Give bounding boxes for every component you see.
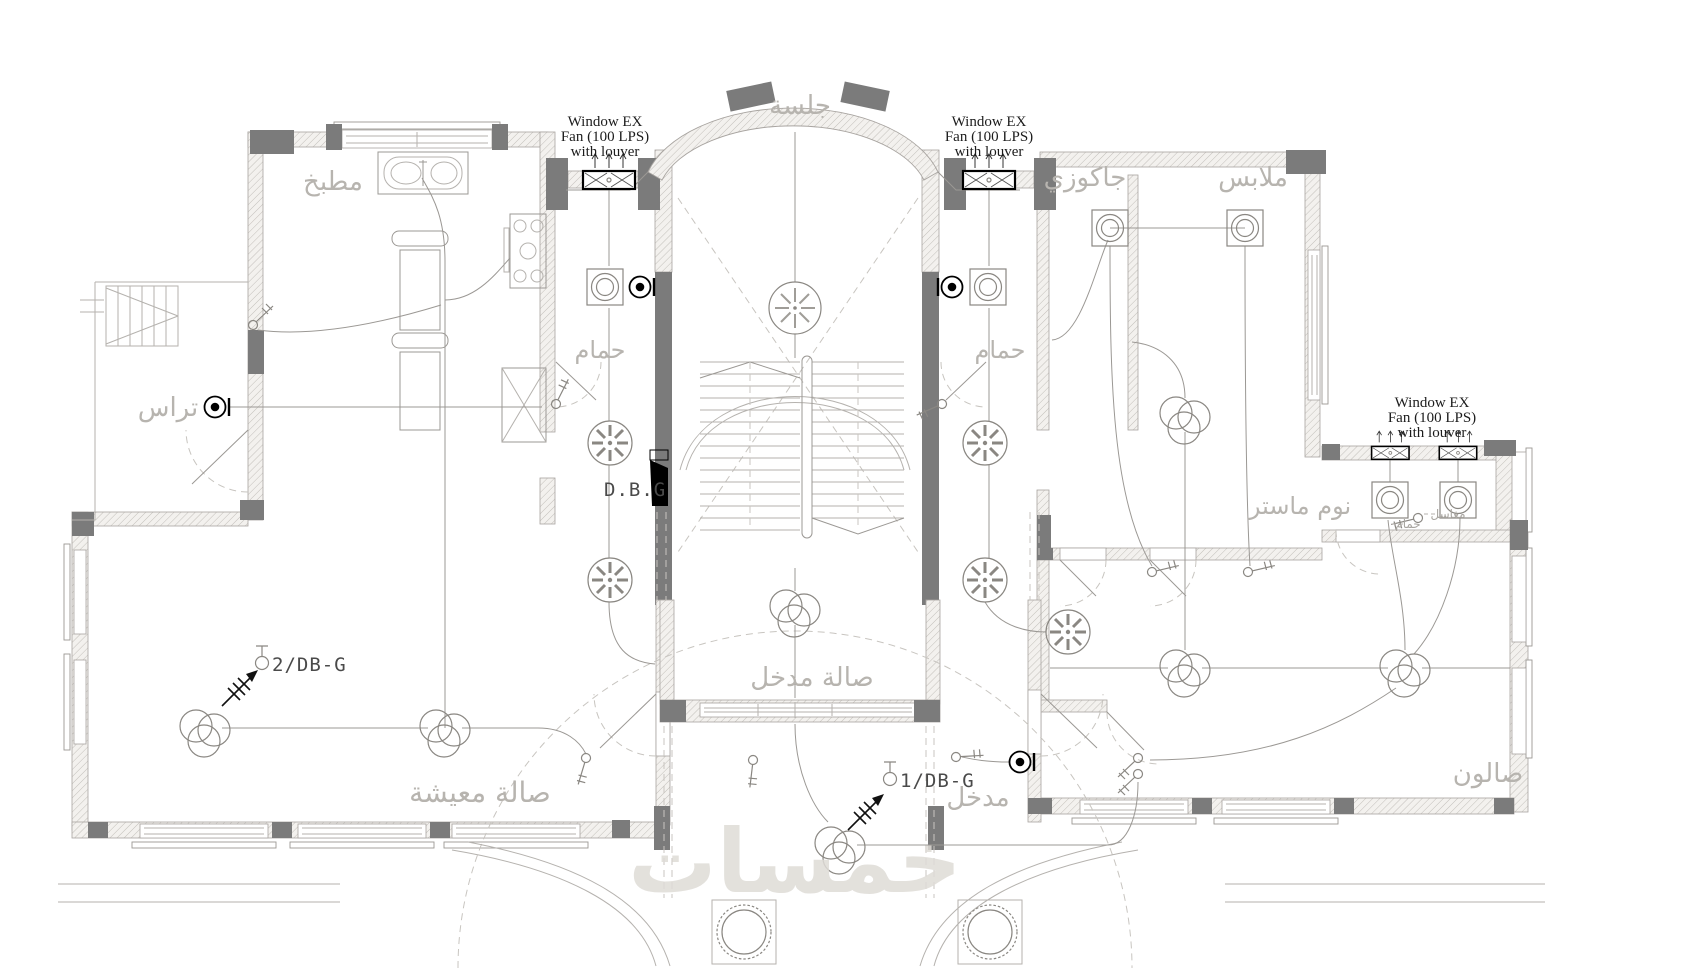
exhaust-fan-icon — [588, 421, 632, 465]
watermark: خمسات — [628, 810, 961, 913]
wall-light-icon — [205, 397, 230, 418]
room-label-terrace: تراس — [138, 393, 199, 423]
window-sill — [1526, 660, 1532, 758]
window — [1080, 800, 1188, 814]
floor-plan-canvas: Window EX Fan (100 LPS) with louver Wind… — [0, 0, 1700, 970]
window — [1308, 250, 1320, 400]
light-cluster-icon — [420, 710, 470, 757]
window-sill — [1072, 818, 1196, 824]
fan-label-2-line3: with louver — [955, 144, 1024, 160]
exhaust-fan-icon — [963, 421, 1007, 465]
door-leaf — [1150, 560, 1186, 596]
column — [1322, 444, 1340, 460]
stair-rail — [802, 356, 812, 538]
door-opening — [1028, 690, 1041, 754]
island-cap — [392, 333, 448, 348]
bay-cross-brace — [678, 198, 918, 552]
sink-basin — [431, 162, 457, 184]
circuit-2-label: 2/DB-G — [272, 654, 347, 676]
wall-segment — [540, 478, 555, 524]
homerun-arrow-c2 — [222, 670, 258, 706]
room-label-sitting: جلسة — [769, 91, 831, 121]
column — [272, 822, 292, 838]
ceiling-light-icon — [1372, 482, 1408, 518]
switch-icon — [735, 754, 770, 789]
wire — [222, 728, 586, 754]
column — [1510, 520, 1528, 550]
fan-label-1-line2: Fan (100 LPS) — [561, 129, 649, 145]
wire — [1150, 688, 1396, 760]
column — [914, 700, 940, 722]
room-label-master-bath: حمام — [1395, 517, 1420, 531]
light-cluster-icon — [180, 710, 230, 757]
room-label-entry-hall: صالة مدخل — [750, 663, 873, 693]
window-sill — [132, 842, 276, 848]
window — [298, 824, 426, 838]
wire — [258, 178, 510, 728]
window-sill — [444, 842, 588, 848]
light-cluster-icon — [1380, 650, 1430, 697]
switch-icon — [1118, 754, 1143, 780]
room-label-kitchen: مطبخ — [303, 167, 363, 197]
round-column-inner — [722, 910, 766, 954]
wall-light-icon — [938, 277, 963, 298]
window-ex-fan-icon — [963, 171, 1015, 189]
door-opening — [1336, 530, 1380, 542]
fan-label-1-line1: Window EX — [568, 114, 643, 130]
burner — [514, 270, 526, 282]
wall-segment — [72, 512, 248, 526]
window — [1512, 668, 1526, 754]
door-leaf — [556, 362, 596, 400]
sink-basin — [391, 162, 421, 184]
round-column — [963, 905, 1017, 959]
island-body — [400, 250, 440, 330]
fan-label-3-line2: Fan (100 LPS) — [1388, 410, 1476, 426]
column — [88, 822, 108, 838]
ceiling-light-icon — [970, 269, 1006, 305]
wall-segment — [1128, 175, 1138, 430]
wall-segment — [248, 132, 263, 520]
fan-label-3-line1: Window EX — [1395, 395, 1470, 411]
window-sill — [334, 122, 500, 129]
column — [1484, 440, 1516, 456]
door-opening — [1150, 548, 1196, 560]
wall-segment — [1037, 700, 1107, 712]
column — [492, 124, 508, 150]
column — [1334, 798, 1354, 814]
column — [240, 500, 264, 520]
column — [1494, 798, 1514, 814]
door-leaf — [600, 694, 656, 748]
fan-label-3-line3: with louver — [1398, 425, 1467, 441]
room-label-jacuzzi: جاكوزي — [1044, 163, 1127, 193]
window-ex-fan-icon — [1439, 446, 1476, 459]
db-board-label: D.B.G — [604, 479, 666, 501]
round-column — [717, 905, 771, 959]
walls-layer — [72, 132, 1528, 838]
door-leaf — [946, 362, 986, 400]
window-sill — [1214, 818, 1338, 824]
column — [430, 822, 450, 838]
column — [1028, 798, 1052, 814]
room-label-bath-left: حمام — [575, 336, 626, 364]
circuit-symbol — [884, 762, 897, 786]
shower-cross — [502, 368, 546, 442]
ceiling-light-icon — [587, 269, 623, 305]
ceiling-fan-icon — [769, 282, 821, 334]
floor-plan-drawing: Window EX Fan (100 LPS) with louver Wind… — [0, 0, 1700, 970]
entrance-door-glazing — [700, 703, 916, 717]
window-sill — [1526, 448, 1532, 532]
wall-heavy — [922, 272, 939, 605]
bay-arch — [680, 397, 910, 471]
door-leaf — [192, 430, 248, 484]
column — [326, 124, 342, 150]
window-ex-fan-icon — [583, 171, 635, 189]
door-leaf — [1060, 560, 1096, 596]
window-sill — [1322, 246, 1328, 404]
window — [74, 660, 86, 744]
archway-dashes — [657, 512, 1039, 600]
stove-panel — [504, 228, 509, 272]
window-sill — [290, 842, 434, 848]
exhaust-fan-icon — [963, 558, 1007, 602]
window — [1222, 800, 1330, 814]
switch-icon — [566, 752, 600, 786]
column — [546, 158, 568, 210]
fan-label-2-line1: Window EX — [952, 114, 1027, 130]
window-sill — [64, 544, 70, 640]
fan-label-1-line3: with louver — [571, 144, 640, 160]
room-label-closet: ملابس — [1218, 163, 1288, 193]
window — [452, 824, 580, 838]
door-leaf — [1107, 712, 1144, 750]
wire — [609, 190, 655, 664]
door-opening — [1060, 548, 1106, 560]
wall-segment — [660, 600, 674, 704]
sink-tap — [419, 160, 427, 186]
light-cluster-icon — [1160, 650, 1210, 697]
wall-segment — [926, 600, 940, 704]
burner — [514, 220, 526, 232]
room-label-entry: مدخل — [946, 783, 1009, 813]
room-label-bath-right: حمام — [975, 336, 1026, 364]
window — [140, 824, 268, 838]
round-column-inner — [968, 910, 1012, 954]
window-sill — [1526, 548, 1532, 646]
column — [250, 130, 294, 154]
wall-light-icon — [630, 277, 655, 298]
window — [74, 550, 86, 634]
column — [1192, 798, 1212, 814]
burner-center — [520, 243, 536, 259]
column — [840, 81, 889, 111]
window-ex-fan-icon — [1372, 446, 1409, 459]
switch-icon — [950, 738, 985, 773]
column — [1286, 150, 1326, 174]
column — [660, 700, 686, 722]
circuit-symbol — [256, 646, 269, 670]
room-label-sinks: مغاسل — [1430, 507, 1465, 521]
wire — [1052, 228, 1250, 566]
wire — [1390, 460, 1458, 482]
exhaust-fan-icon — [1046, 610, 1090, 654]
room-label-master: نوم ماستر — [1248, 492, 1351, 520]
room-label-living: صالة معيشة — [409, 776, 551, 809]
wall-segment — [1496, 446, 1514, 532]
window — [1512, 452, 1526, 528]
wire — [962, 757, 1009, 762]
exhaust-fan-icon — [588, 558, 632, 602]
room-label-salon: صالون — [1453, 759, 1523, 789]
fan-label-2-line2: Fan (100 LPS) — [945, 129, 1033, 145]
column — [72, 512, 94, 536]
island-body — [400, 352, 440, 430]
island-top — [392, 231, 448, 246]
wall-heavy — [655, 272, 672, 605]
column — [248, 330, 264, 374]
window — [1512, 556, 1526, 642]
window-sill — [64, 654, 70, 750]
